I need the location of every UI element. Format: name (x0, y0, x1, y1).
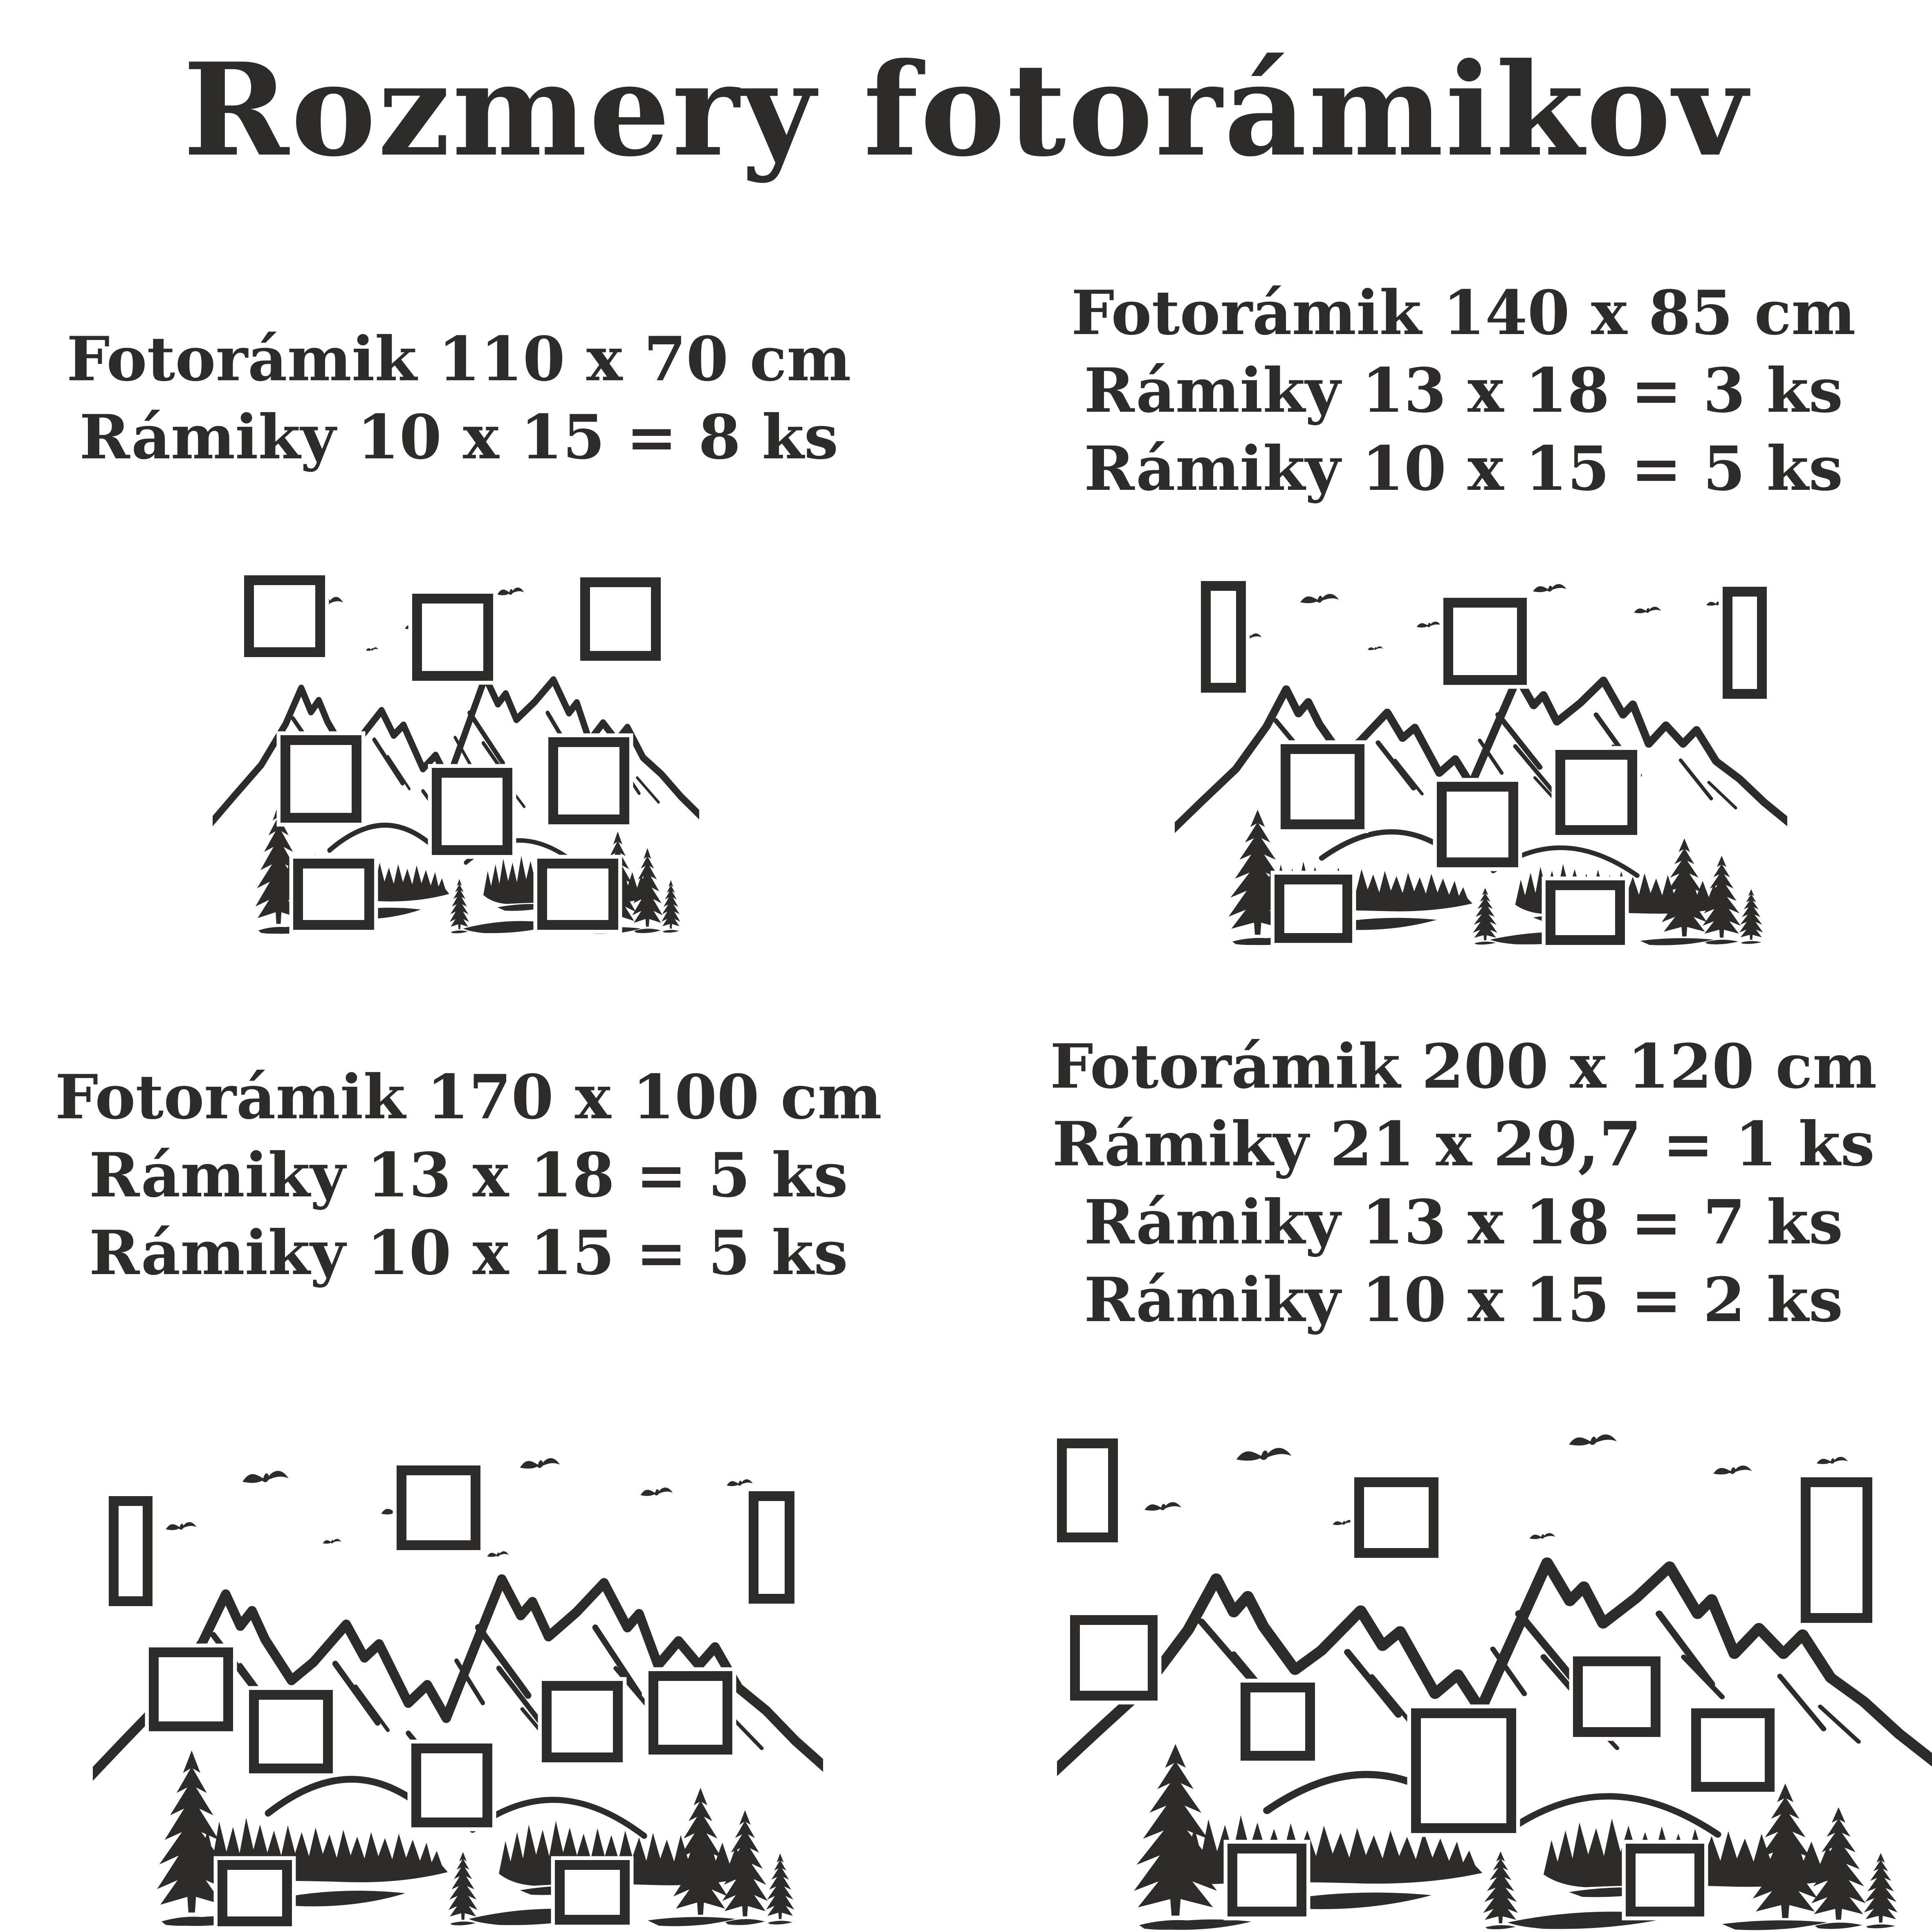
photo-frame (1070, 1615, 1158, 1701)
photo-frame (1227, 1844, 1306, 1916)
spec-line: Rámiky 21 x 29,7 = 1 ks (995, 1106, 1932, 1184)
photo-frame (1241, 1683, 1315, 1761)
spec-text-block-200x120: Fotorámik 200 x 120 cmRámiky 21 x 29,7 =… (995, 1028, 1932, 1340)
photo-frame (1354, 1477, 1438, 1558)
mountain-scene-200x120 (1057, 1412, 1932, 1932)
quadrant-200x120: Fotorámik 200 x 120 cmRámiky 21 x 29,7 =… (0, 0, 1932, 1932)
photo-frame (1691, 1708, 1774, 1791)
photo-frame (1573, 1656, 1660, 1737)
spec-line: Rámiky 10 x 15 = 2 ks (995, 1261, 1932, 1340)
photo-frame (1626, 1844, 1705, 1916)
spec-line: Rámiky 13 x 18 = 7 ks (995, 1184, 1932, 1262)
photo-frame (1411, 1708, 1516, 1833)
spec-line: Fotorámik 200 x 120 cm (995, 1028, 1932, 1106)
poster-page: Rozmery fotorámikov Fotorámik 110 x 70 c… (0, 0, 1932, 1932)
photo-frame (1801, 1477, 1873, 1623)
photo-frames-layer (1057, 1412, 1932, 1932)
photo-frame (1057, 1438, 1118, 1542)
